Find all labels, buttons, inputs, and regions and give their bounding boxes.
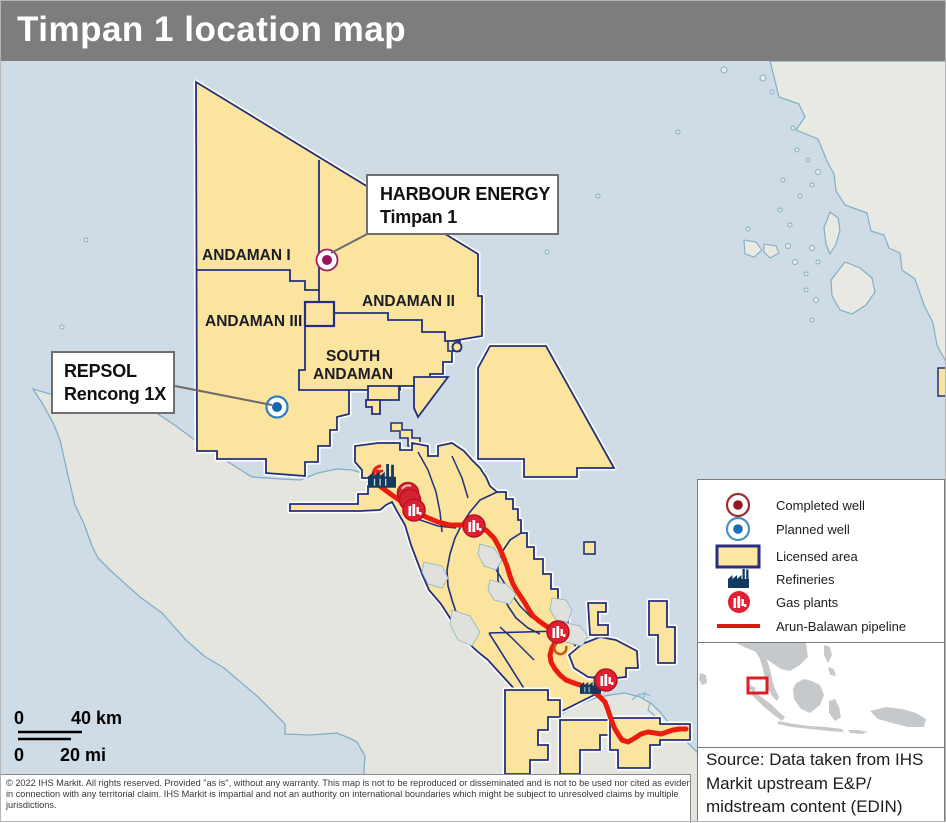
svg-text:ANDAMAN: ANDAMAN	[313, 366, 393, 383]
svg-text:ANDAMAN II: ANDAMAN II	[362, 293, 455, 310]
svg-text:ANDAMAN III: ANDAMAN III	[205, 313, 302, 330]
svg-text:20 mi: 20 mi	[60, 745, 106, 765]
svg-text:0: 0	[14, 708, 24, 728]
svg-text:SOUTH: SOUTH	[326, 348, 380, 365]
svg-text:ANDAMAN I: ANDAMAN I	[202, 247, 291, 264]
svg-text:40 km: 40 km	[71, 708, 122, 728]
svg-text:0: 0	[14, 745, 24, 765]
